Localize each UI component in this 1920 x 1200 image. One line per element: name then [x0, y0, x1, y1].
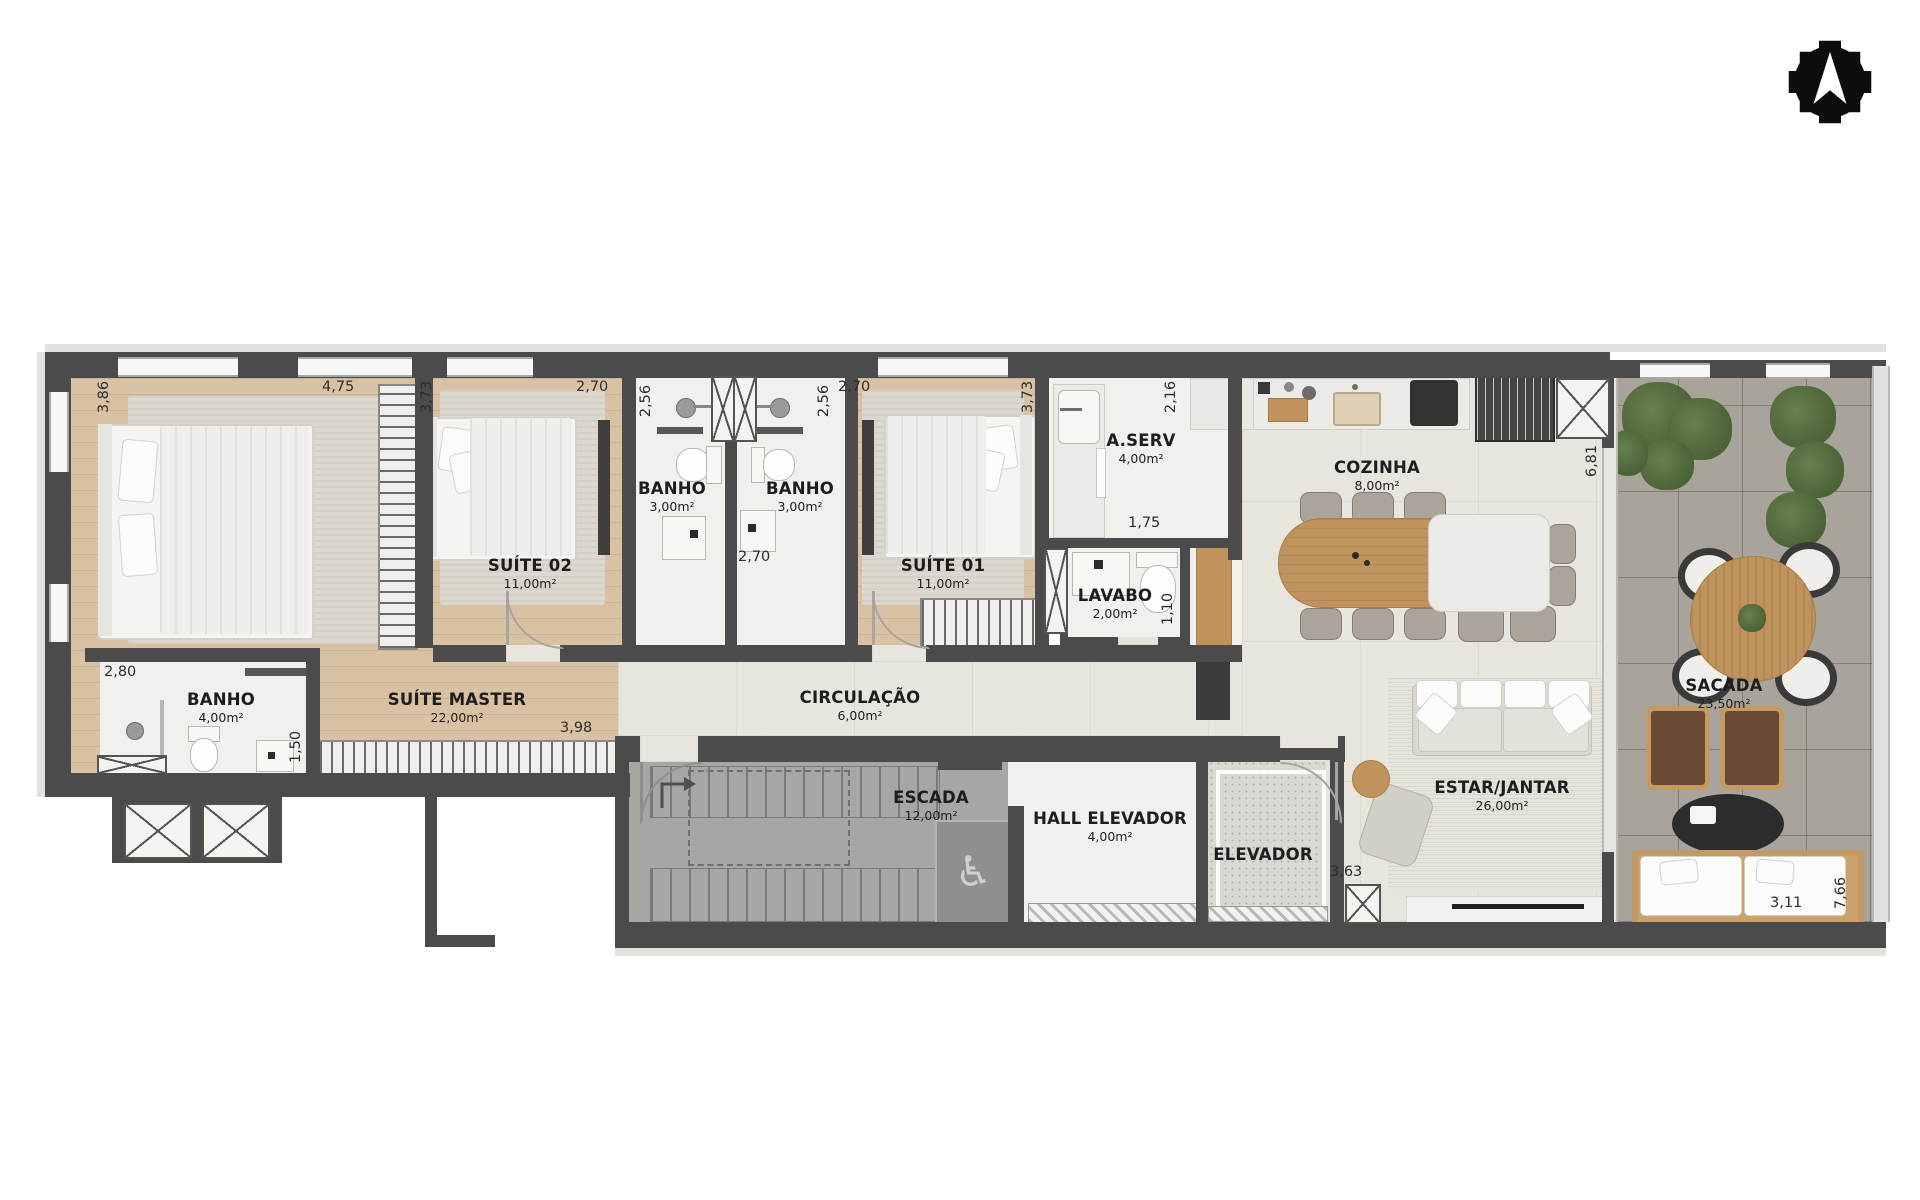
wall-stairs-left — [615, 736, 629, 948]
elevator-pit-hatch — [1208, 906, 1328, 922]
sink-banho-01 — [740, 510, 776, 552]
shelf-banho-master — [245, 668, 307, 676]
door-leaf-suite-01 — [872, 591, 875, 645]
plant — [1786, 442, 1844, 498]
wall-bottom-left — [45, 773, 630, 797]
dimension-3-86: 3,86 — [96, 375, 112, 419]
kitchen-tall-unit-louver — [1475, 376, 1555, 442]
tap — [268, 752, 275, 759]
kitchen-item — [1258, 382, 1270, 394]
dimension-2-56-banho02: 2,56 — [638, 379, 654, 423]
room-name: SUÍTE 02 — [488, 556, 572, 575]
room-area: 4,00m² — [187, 710, 255, 725]
wall-banho-suite01 — [845, 378, 858, 662]
wall-lavabo-bottom-b — [1158, 637, 1190, 645]
window-balcony — [1766, 363, 1830, 379]
dimension-3-73-suite02: 3,73 — [419, 375, 435, 419]
coffee-bar-cabinet — [1196, 545, 1232, 647]
wall-aserv-kitchen — [1228, 378, 1242, 560]
plant — [1640, 440, 1694, 490]
room-name: CIRCULAÇÃO — [800, 688, 921, 707]
room-label-suite-master: SUÍTE MASTER 22,00m² — [388, 690, 526, 725]
wardrobe-rack-master-bottom — [318, 740, 618, 777]
shower-head-banho-master — [126, 722, 144, 740]
dimension-2-80: 2,80 — [104, 664, 136, 680]
door-leaf-escada — [640, 762, 643, 820]
room-name: BANHO — [187, 690, 255, 709]
shelf-banho-02 — [657, 427, 703, 434]
wall-corridor-c — [926, 645, 1242, 662]
plant — [1770, 386, 1836, 448]
dimension-7-66: 7,66 — [1833, 871, 1849, 915]
shelf-banho-01 — [757, 427, 803, 434]
room-area: 8,00m² — [1334, 478, 1420, 493]
wall-stairs-top-b — [698, 736, 1280, 762]
dimension-3-63: 3,63 — [1330, 864, 1362, 880]
shower-head-banho-02 — [676, 398, 696, 418]
balcony-coffee-table — [1672, 794, 1784, 854]
hall-floor-hatch — [1028, 903, 1198, 923]
room-label-banho-suite-01: BANHO 3,00m² — [766, 479, 834, 514]
room-area: 3,00m² — [638, 499, 706, 514]
dimension-1-75: 1,75 — [1128, 515, 1160, 531]
shaft-x-box-lavabo — [1044, 548, 1068, 634]
room-label-banho-master: BANHO 4,00m² — [187, 690, 255, 725]
table-deco — [1352, 552, 1359, 559]
wall-elevador-left — [1196, 760, 1208, 922]
room-name: SUÍTE 01 — [901, 556, 985, 575]
room-area: 6,00m² — [800, 708, 921, 723]
room-name: A.SERV — [1106, 431, 1175, 450]
kitchen-sink — [1333, 392, 1381, 426]
wheelchair-accessible-icon: ♿ — [955, 851, 993, 893]
tap — [1060, 408, 1082, 411]
room-label-a-serv: A.SERV 4,00m² — [1106, 431, 1175, 466]
side-table-living — [1352, 760, 1390, 798]
wall-demising-stub-h — [425, 935, 495, 947]
room-label-estar-jantar: ESTAR/JANTAR 26,00m² — [1434, 778, 1569, 813]
room-area: 12,00m² — [893, 808, 969, 823]
room-label-cozinha: COZINHA 8,00m² — [1334, 458, 1420, 493]
room-label-suite-01: SUÍTE 01 11,00m² — [901, 556, 985, 591]
room-name: SACADA — [1685, 676, 1762, 695]
window-top — [878, 357, 1008, 377]
dimension-6-81: 6,81 — [1584, 439, 1600, 483]
door-leaf-hall — [1335, 762, 1338, 820]
bed-headboard-master — [98, 424, 112, 636]
shaft-x-box-kitchen — [1556, 378, 1610, 439]
tap — [1094, 560, 1103, 569]
room-label-suite-02: SUÍTE 02 11,00m² — [488, 556, 572, 591]
accessible-area: ♿ — [935, 820, 1010, 922]
bed-headboard-suite-01 — [1020, 415, 1032, 555]
dimension-3-98: 3,98 — [560, 720, 592, 736]
kitchen-faucet — [1352, 384, 1358, 390]
room-name: COZINHA — [1334, 458, 1420, 477]
wall-suite02-banho — [622, 378, 636, 662]
table-centerpiece-plant — [1738, 604, 1766, 632]
toilet-banho-master — [190, 738, 218, 772]
room-area: 4,00m² — [1106, 451, 1175, 466]
window-balcony — [1640, 363, 1710, 379]
balcony-armchair — [1720, 706, 1784, 790]
dimension-2-56-banho01: 2,56 — [816, 379, 832, 423]
window-top — [447, 357, 533, 377]
room-name: ELEVADOR — [1213, 845, 1313, 864]
wall-corridor-a — [433, 645, 506, 662]
room-name: BANHO — [638, 479, 706, 498]
tv — [1452, 904, 1584, 909]
wall-bottom — [615, 922, 1886, 948]
dimension-2-70-suite02: 2,70 — [576, 379, 608, 395]
room-name: LAVABO — [1078, 586, 1152, 605]
door-leaf-suite-02 — [506, 591, 509, 645]
shaft-x-box-bottom-left — [124, 803, 192, 859]
shaft-x-box-bottom-left — [202, 803, 270, 859]
sofa-cushion — [1504, 680, 1546, 708]
shaft-x-box-living — [1345, 884, 1381, 924]
floor-plan: ♿ — [0, 0, 1920, 1200]
room-area: 26,00m² — [1434, 798, 1569, 813]
dimension-2-70-suite01: 2,70 — [838, 379, 870, 395]
window-left — [49, 584, 69, 642]
room-label-banho-suite-02: BANHO 3,00m² — [638, 479, 706, 514]
kitchen-item — [1284, 382, 1294, 392]
balcony-rail-right — [1872, 366, 1890, 922]
dining-table-wood — [1278, 518, 1445, 608]
exterior-trim-left — [37, 352, 45, 797]
door-leaf-a-serv — [1096, 448, 1106, 498]
toilet-tank-banho-02 — [706, 446, 722, 484]
window-top — [118, 357, 238, 377]
toilet-banho-02 — [676, 448, 710, 482]
room-label-escada: ESCADA 12,00m² — [893, 788, 969, 823]
room-area: 22,00m² — [388, 710, 526, 725]
wall-escada-hall — [1008, 806, 1024, 922]
wall-corridor-b — [560, 645, 872, 662]
shaft-x-box — [711, 376, 735, 442]
stair-projection-dashed — [688, 770, 850, 866]
room-name: ESTAR/JANTAR — [1434, 778, 1569, 797]
stair-treads-lower — [650, 868, 940, 922]
wall-demising-stub — [425, 797, 437, 947]
dimension-4-75: 4,75 — [322, 379, 354, 395]
cabinet-x-banho-master — [97, 755, 167, 775]
blanket-suite-02 — [470, 418, 572, 556]
north-arrow-logo-icon — [1786, 38, 1874, 126]
wall-banho-master-right — [306, 648, 320, 797]
pillow — [118, 513, 158, 577]
room-area: 4,00m² — [1033, 829, 1187, 844]
dimension-3-11: 3,11 — [1770, 895, 1802, 911]
outdoor-pillow — [1755, 858, 1795, 885]
dimension-3-73-suite01: 3,73 — [1020, 375, 1036, 419]
window-top — [298, 357, 412, 377]
room-label-elevador: ELEVADOR — [1213, 845, 1313, 864]
kitchen-cabinet — [1190, 378, 1254, 430]
dining-chair — [1548, 566, 1576, 606]
cooktop — [1410, 380, 1458, 426]
room-label-sacada: SACADA 23,50m² — [1685, 676, 1762, 711]
wall-elevador-top — [1196, 748, 1342, 760]
patch-escada-door — [640, 736, 698, 762]
tv-panel-suite-02 — [598, 420, 610, 555]
shower-glass-banho-master — [160, 700, 164, 762]
table-deco — [1364, 560, 1370, 566]
dining-chair — [1300, 608, 1342, 640]
tv-console — [1406, 896, 1604, 924]
plant — [1766, 492, 1826, 548]
exterior-trim-top — [45, 344, 1886, 352]
tap — [690, 530, 698, 538]
exterior-trim-bottom — [615, 948, 1886, 956]
tv-panel-suite-01 — [862, 420, 874, 555]
room-name: ESCADA — [893, 788, 969, 807]
cutting-board — [1268, 398, 1308, 422]
room-area: 11,00m² — [901, 576, 985, 591]
dining-chair — [1404, 608, 1446, 640]
dimension-1-50: 1,50 — [288, 725, 304, 769]
wall-banho-master-top — [85, 648, 320, 662]
dimension-1-10: 1,10 — [1160, 587, 1176, 631]
floor-circulacao — [618, 662, 1242, 736]
wall-top — [45, 352, 1610, 378]
toilet-banho-01 — [763, 449, 795, 481]
room-name: SUÍTE MASTER — [388, 690, 526, 709]
room-label-hall-elevador: HALL ELEVADOR 4,00m² — [1033, 809, 1187, 844]
sofa-cushion — [1460, 680, 1502, 708]
wall-glass-post-bottom — [1602, 852, 1614, 922]
blanket-suite-01 — [886, 416, 986, 554]
dining-table-marble — [1428, 514, 1550, 612]
dining-chair — [1548, 524, 1576, 564]
balcony-armchair — [1646, 706, 1710, 790]
room-label-lavabo: LAVABO 2,00m² — [1078, 586, 1152, 621]
laundry-tank-a-serv — [1058, 390, 1100, 444]
shower-head-banho-01 — [770, 398, 790, 418]
outdoor-pillow — [1659, 858, 1699, 886]
kitchen-pan — [1302, 386, 1316, 400]
room-area: 23,50m² — [1685, 696, 1762, 711]
room-area: 2,00m² — [1078, 606, 1152, 621]
wall-aserv-bottom — [1042, 538, 1242, 548]
tap — [748, 524, 756, 532]
shaft-x-box — [733, 376, 757, 442]
room-name: BANHO — [766, 479, 834, 498]
wall-lavabo-bottom-a — [1060, 637, 1118, 645]
wall-lavabo-right — [1180, 548, 1190, 637]
blanket-master — [160, 426, 308, 634]
room-name: HALL ELEVADOR — [1033, 809, 1187, 828]
room-area: 11,00m² — [488, 576, 572, 591]
wardrobe-rack-master-vertical — [378, 384, 418, 650]
glass-wall-balcony — [1602, 378, 1618, 922]
wardrobe-rack-suite-01 — [920, 598, 1038, 648]
dining-chair — [1352, 608, 1394, 640]
patch-escada-hall-door — [1008, 762, 1024, 806]
dimension-2-16: 2,16 — [1163, 375, 1179, 419]
sink-banho-02 — [662, 516, 706, 560]
room-label-circulacao: CIRCULAÇÃO 6,00m² — [800, 688, 921, 723]
wall-between-banhos — [725, 437, 737, 645]
laptop-on-table — [1690, 806, 1716, 824]
dimension-2-70-banho: 2,70 — [738, 549, 770, 565]
pillow — [117, 439, 158, 504]
patch-lavabo-door — [1118, 637, 1158, 645]
room-area: 3,00m² — [766, 499, 834, 514]
window-left — [49, 392, 69, 472]
